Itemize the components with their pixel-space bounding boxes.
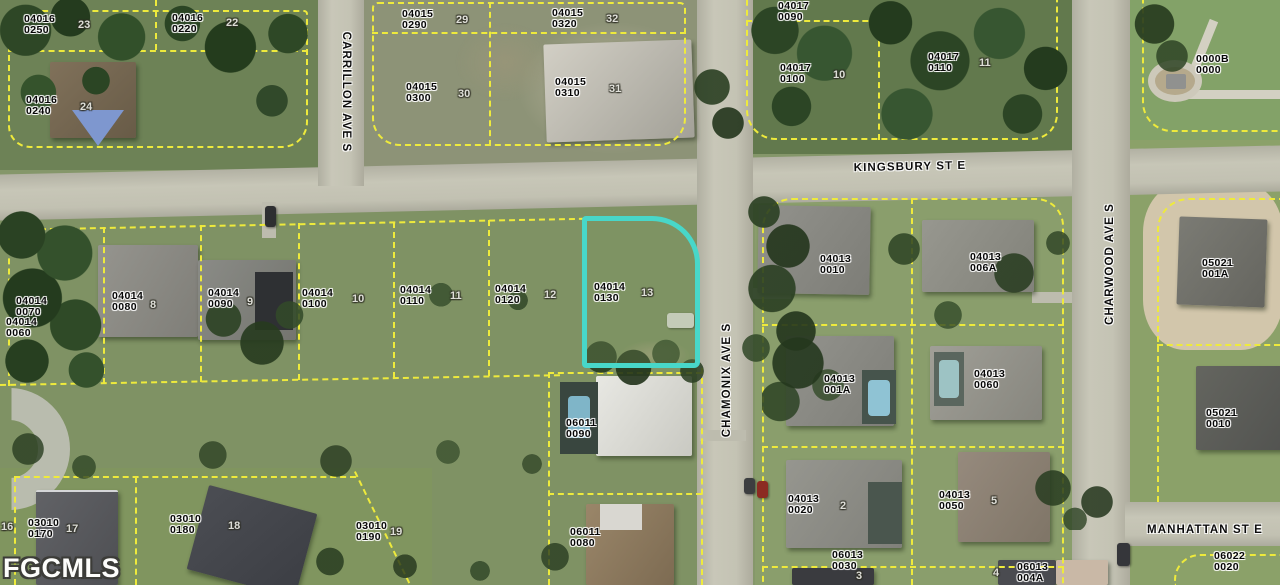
lot-number: 12	[544, 289, 556, 301]
parcel-label: 040140080	[112, 291, 143, 312]
lot-number: 8	[150, 299, 156, 311]
parcel-label: 04013001A	[824, 374, 855, 395]
lot-number: 18	[228, 520, 240, 532]
car	[757, 481, 768, 498]
lot-number: 13	[641, 287, 653, 299]
lot-number: 11	[979, 57, 991, 69]
parcel-label: 030100180	[170, 514, 201, 535]
parcel-label: 040170100	[780, 63, 811, 84]
lot-number: 11	[450, 290, 462, 302]
lot-number: 16	[1, 521, 13, 533]
parcel-label: 040150310	[555, 77, 586, 98]
parcel-label: 030100190	[356, 521, 387, 542]
parcel-label: 060220020	[1214, 551, 1245, 572]
lot-number: 22	[226, 17, 238, 29]
parcel-label: 05021001A	[1202, 258, 1233, 279]
parcel-label: 04013006A	[970, 252, 1001, 273]
lot-number: 23	[78, 19, 90, 31]
parcel-label: 040140060	[6, 317, 37, 338]
aerial-parcel-map: 040160250 040160220 040160240 040150290 …	[0, 0, 1280, 585]
parcel-label: 040150290	[402, 9, 433, 30]
parcel-label: 040140110	[400, 285, 431, 306]
car	[1117, 543, 1130, 566]
lot-number: 29	[456, 14, 468, 26]
parcel-label: 040160250	[24, 14, 55, 35]
parcel-label: 040140120	[495, 284, 526, 305]
parcel-label: 040170110	[928, 52, 959, 73]
driveway	[1032, 292, 1072, 303]
street-label-chamonix: CHAMONIX AVE S	[721, 323, 733, 437]
pool	[939, 360, 959, 398]
street-label-manhattan: MANHATTAN ST E	[1140, 524, 1270, 536]
road-chamonix	[697, 0, 753, 585]
parcel-label: 040160240	[26, 95, 57, 116]
parcel-label: 040140100	[302, 288, 333, 309]
lot-number: 19	[390, 526, 402, 538]
parcel-label-highlighted: 040140130	[594, 282, 625, 303]
parcel-label: 040150300	[406, 82, 437, 103]
lot-number: 31	[609, 83, 621, 95]
pool-enclosure	[868, 482, 902, 544]
parcel-label: 030100170	[28, 518, 59, 539]
parcel-label: 060110080	[570, 527, 601, 548]
parcel-label: 0000B0000	[1196, 54, 1229, 75]
lot-number: 9	[247, 296, 253, 308]
lot-number: 24	[80, 101, 92, 113]
street-label-charwood: CHARWOOD AVE S	[1104, 203, 1116, 325]
house-roof	[757, 205, 871, 295]
gazebo	[1166, 74, 1186, 89]
parcel-label: 040150320	[552, 8, 583, 29]
parcel-label: 050210010	[1206, 408, 1237, 429]
parcel-label: 040130060	[974, 369, 1005, 390]
parcel-label: 06013004A	[1017, 562, 1048, 583]
solar-panels	[255, 272, 293, 330]
lot-number: 32	[606, 13, 618, 25]
lot-number: 10	[833, 69, 845, 81]
parcel-label: 040140070	[16, 296, 47, 317]
parcel-label: 040130020	[788, 494, 819, 515]
parcel-label: 040160220	[172, 13, 203, 34]
lot-number: 10	[352, 293, 364, 305]
garage-roof	[600, 504, 642, 530]
parcel-label: 060110090	[566, 418, 597, 439]
watermark: FGCMLS	[3, 553, 120, 584]
house-roof	[1056, 560, 1108, 585]
car	[744, 478, 755, 494]
lot-number: 17	[66, 523, 78, 535]
street-label-carrillon: CARRILLON AVE S	[340, 32, 352, 153]
lot-number: 5	[991, 495, 997, 507]
parcel-label: 040130050	[939, 490, 970, 511]
lot-number: 4	[993, 567, 999, 579]
parcel-label: 040130010	[820, 254, 851, 275]
parcel-label: 040140090	[208, 288, 239, 309]
road-charwood	[1072, 0, 1130, 585]
lot-number: 2	[840, 500, 846, 512]
parcel-label: 040170090	[778, 1, 809, 22]
house-roof	[958, 452, 1050, 542]
house-roof	[596, 376, 692, 456]
pool	[868, 380, 890, 416]
lot-number: 3	[856, 570, 862, 582]
car	[265, 206, 276, 227]
parcel-label: 060130030	[832, 550, 863, 571]
lot-number: 30	[458, 88, 470, 100]
